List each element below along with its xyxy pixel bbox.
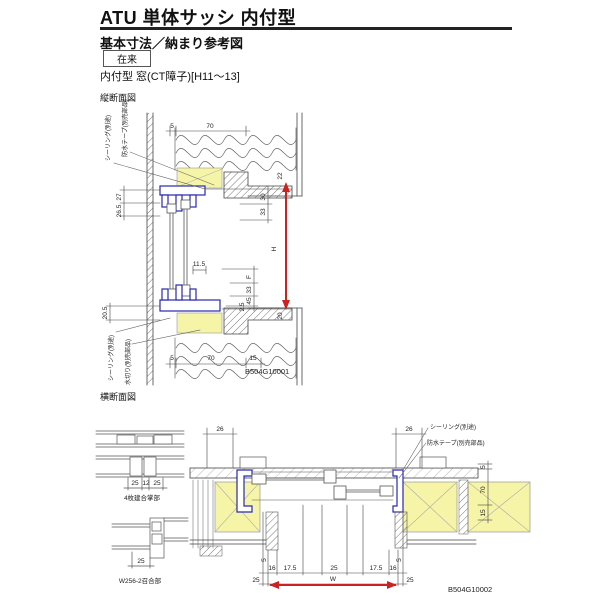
dim-label: 16 <box>268 565 276 572</box>
callout-sealing: シーリング(別途) <box>430 423 476 431</box>
dim-26-left <box>203 428 237 468</box>
callout-tape-top: 防水テープ(別売部品) <box>121 99 129 157</box>
dim-label: 33 <box>260 208 267 216</box>
dim-right-lower <box>222 266 292 311</box>
dim-label-H: H <box>271 246 278 251</box>
detail-b-label: W256-2召合部 <box>119 576 162 585</box>
dim-label: 33 <box>246 286 253 294</box>
drawing-code-2: B504G10002 <box>448 585 492 594</box>
dim-left <box>120 186 160 220</box>
detail-b-drawing <box>112 518 188 568</box>
insulation-top <box>175 128 296 171</box>
dim-label: F <box>246 275 253 279</box>
dim-label: 11.5 <box>193 261 206 268</box>
dim-label: 27 <box>116 193 123 201</box>
callout-sealing-top: シーリング(別途) <box>104 115 112 161</box>
dim-label: 15 <box>249 355 257 362</box>
furring-strip-right <box>420 457 446 468</box>
mortar-hatch-bottom <box>224 308 292 334</box>
furring-strip-left <box>240 457 266 468</box>
dim-label: 45 <box>246 297 253 305</box>
dim-label: 5 <box>170 123 174 130</box>
dim-label: 17.5 <box>370 565 383 572</box>
right-jamb-profile <box>393 470 403 512</box>
dim-label: 70 <box>206 123 214 130</box>
dim-label: 5 <box>396 558 403 562</box>
dim-label: 5 <box>480 465 487 469</box>
dim-label: 5 <box>170 355 174 362</box>
siding-lines <box>193 480 213 548</box>
dim-label: 25 <box>153 480 161 487</box>
vertical-section-diagram: 5 70 27 26.5 20.5 11.5 30 <box>102 99 302 385</box>
dim-label: 30 <box>260 193 267 201</box>
callout-drip-bottom: 水切り(別売部品) <box>124 339 132 385</box>
dim-label: 70 <box>207 355 215 362</box>
horizontal-section-diagram: 25 12 25 4枚建合掌部 25 W256-2召合部 <box>96 423 530 594</box>
callout-sealing-bottom: シーリング(別途) <box>107 335 115 381</box>
technical-drawing: 5 70 27 26.5 20.5 11.5 30 <box>0 0 600 600</box>
dim-label: 5 <box>261 558 268 562</box>
dim-label-W: W <box>330 576 337 583</box>
drawing-code-1: B504G10001 <box>245 367 289 376</box>
exterior-wall-band <box>147 113 153 385</box>
dim-label: 20 <box>277 312 284 320</box>
dim-label: 2.5 <box>239 302 246 311</box>
dim-label: 16 <box>389 565 397 572</box>
dim-label: 25 <box>131 480 139 487</box>
dim-label: 25 <box>330 565 338 572</box>
dim-bottom-chain <box>259 505 407 586</box>
dim-label: 26.5 <box>116 204 123 217</box>
dim-label: 26 <box>405 426 413 433</box>
dim-label: 15 <box>480 509 487 517</box>
drawing-page: ATU 単体サッシ 内付型 基本寸法／納まり参考図 在来 内付型 窓(CT障子)… <box>0 0 600 600</box>
dim-label: 70 <box>480 486 487 494</box>
callout-tape: 防水テープ(別売部品) <box>427 439 485 447</box>
dim-label: 25 <box>137 558 145 565</box>
dim-label: 25 <box>406 577 414 584</box>
dim-label: 22 <box>277 172 284 180</box>
dim-label: 25 <box>252 577 260 584</box>
detail-a-label: 4枚建合掌部 <box>124 493 161 502</box>
dim-label: 12 <box>142 480 150 487</box>
dim-label: 26 <box>216 426 224 433</box>
dim-label: 20.5 <box>102 306 109 319</box>
dim-label: 17.5 <box>284 565 297 572</box>
detail-a-drawing <box>96 431 184 490</box>
height-arrow <box>282 182 290 310</box>
